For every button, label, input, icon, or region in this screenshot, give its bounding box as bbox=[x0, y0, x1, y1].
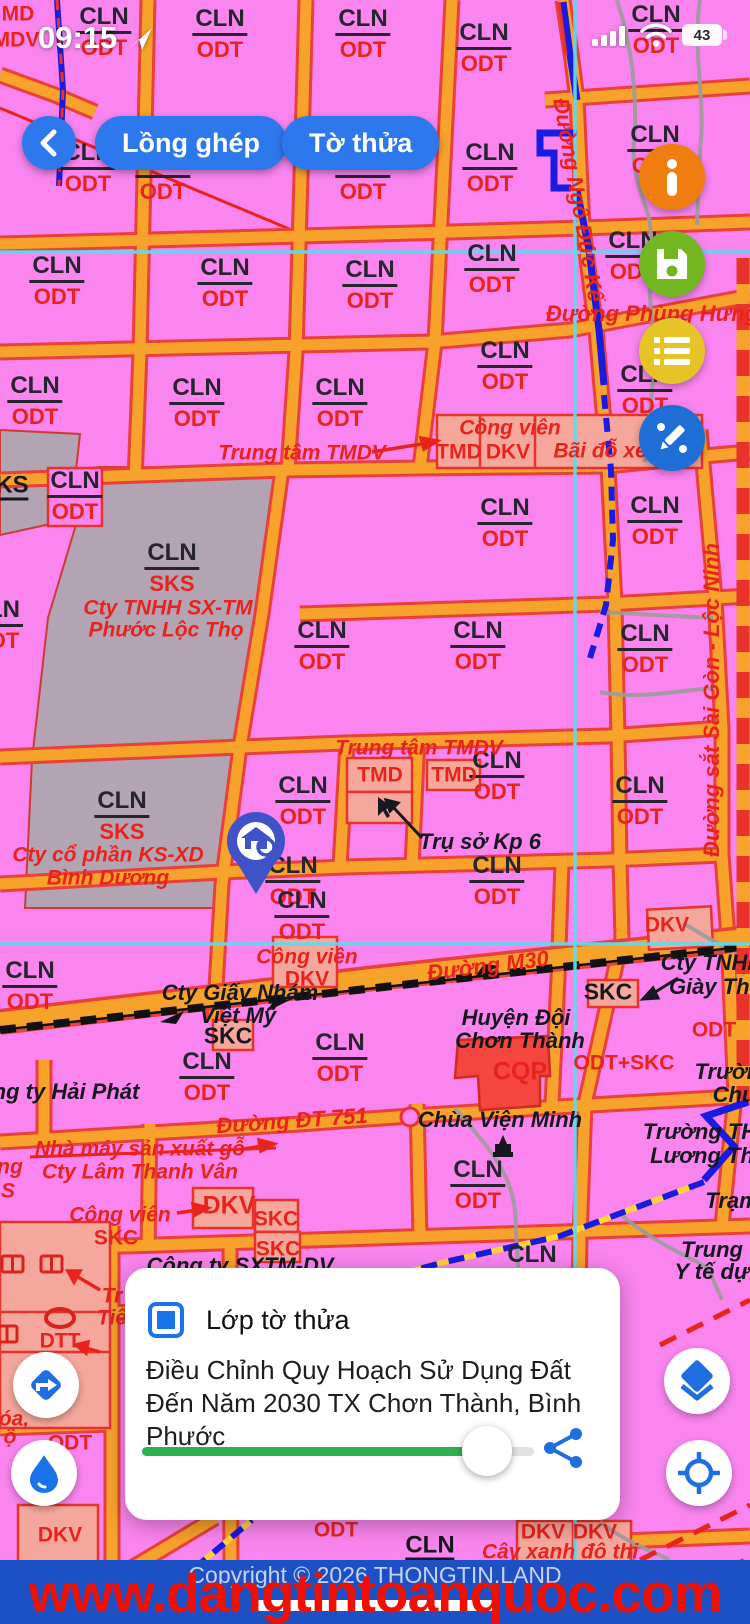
overlay-mode-button[interactable]: Lồng ghép bbox=[95, 116, 287, 170]
locate-button[interactable] bbox=[666, 1440, 732, 1506]
water-drop-icon bbox=[26, 1453, 62, 1493]
clock: 09:15 bbox=[38, 20, 117, 56]
status-bar: 09:15 43 bbox=[0, 18, 750, 68]
opacity-slider[interactable] bbox=[142, 1438, 542, 1464]
location-arrow-icon bbox=[128, 26, 154, 52]
save-icon bbox=[654, 246, 690, 282]
layer-card-title: Lớp tờ thửa bbox=[206, 1305, 350, 1336]
layers-icon bbox=[677, 1360, 717, 1402]
share-button[interactable] bbox=[542, 1426, 586, 1470]
slider-fill bbox=[142, 1447, 487, 1456]
layer-checkbox[interactable] bbox=[148, 1302, 184, 1338]
slider-thumb[interactable] bbox=[462, 1426, 512, 1476]
info-button[interactable] bbox=[639, 144, 705, 210]
wifi-icon bbox=[639, 22, 673, 48]
signal-icon bbox=[590, 22, 630, 48]
map-app-screen: CLNODTCLNODTCLNODTCLNODTCLNODTCLNODTCLNO… bbox=[0, 0, 750, 1624]
water-layer-button[interactable] bbox=[11, 1440, 77, 1506]
location-pin[interactable] bbox=[221, 806, 291, 898]
draw-measure-button[interactable] bbox=[639, 405, 705, 471]
edit-pencil-icon bbox=[653, 419, 691, 457]
back-button[interactable] bbox=[22, 116, 76, 170]
info-icon bbox=[655, 158, 689, 196]
crosshair-icon bbox=[678, 1452, 720, 1494]
list-icon bbox=[654, 335, 690, 367]
chevron-left-icon bbox=[36, 128, 62, 158]
temple-icon bbox=[493, 1135, 513, 1157]
list-button[interactable] bbox=[639, 318, 705, 384]
battery-icon: 43 bbox=[682, 24, 722, 46]
layer-info-card: Lớp tờ thửa Điều Chỉnh Quy Hoạch Sử Dụng… bbox=[125, 1268, 620, 1520]
save-button[interactable] bbox=[639, 231, 705, 297]
directions-button[interactable] bbox=[13, 1352, 79, 1418]
parcel-sheet-button[interactable]: Tờ thửa bbox=[282, 116, 439, 170]
turn-right-icon bbox=[26, 1365, 66, 1405]
layers-button[interactable] bbox=[664, 1348, 730, 1414]
watermark-text: www.dangtintoanquoc.com bbox=[0, 1561, 750, 1624]
